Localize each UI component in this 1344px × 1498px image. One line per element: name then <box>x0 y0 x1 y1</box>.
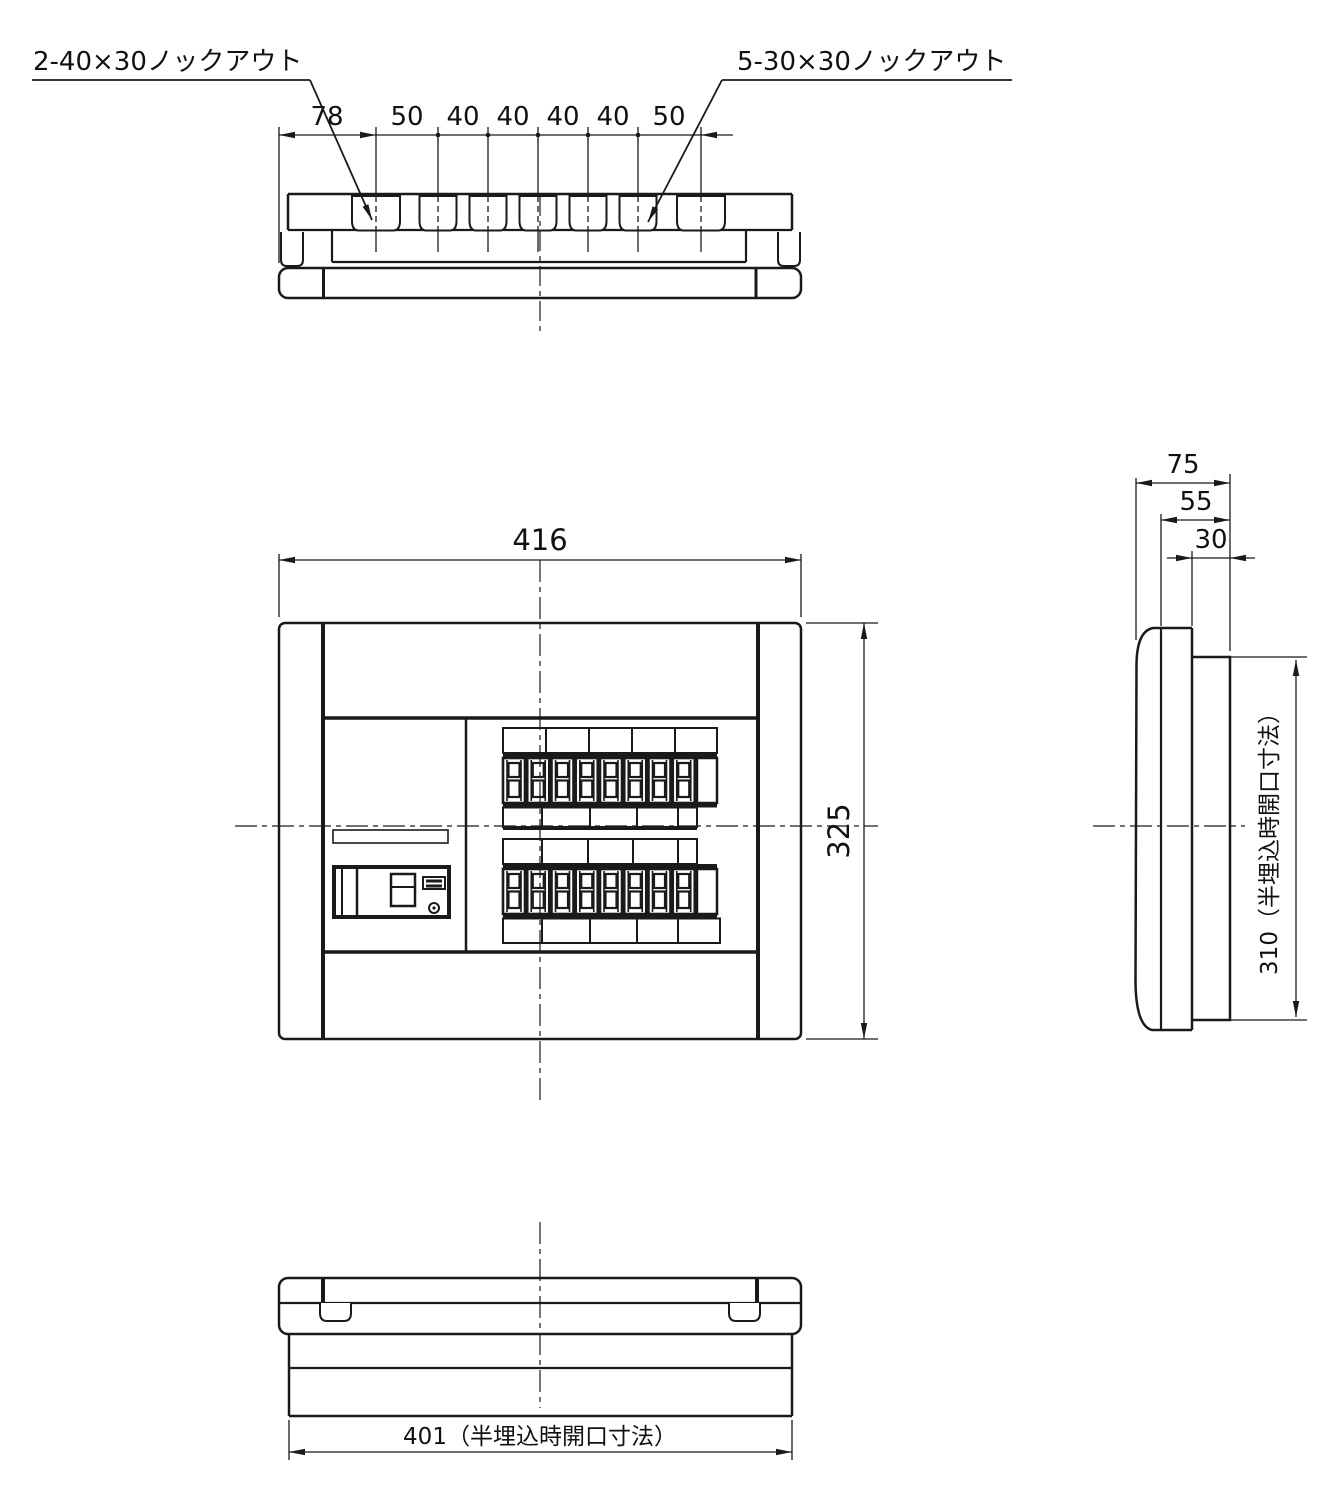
drawing-canvas: 78 50 40 40 40 40 50 2-40×30ノックアウト 5-30×… <box>0 0 1344 1498</box>
arrowhead <box>1214 480 1230 486</box>
leader-line <box>310 80 372 220</box>
main-breaker-section <box>333 830 449 917</box>
dim-40-3: 40 <box>546 102 579 132</box>
name-label-strip <box>333 830 448 843</box>
arrowhead <box>360 132 376 138</box>
side-view: 75 55 30 310（半埋込時開口寸法） <box>1093 450 1307 1030</box>
top-dimension-chain: 78 50 40 40 40 40 50 <box>279 102 733 138</box>
arrowhead <box>861 1023 867 1039</box>
dim-55-text: 55 <box>1179 487 1212 517</box>
arrowhead <box>279 557 295 563</box>
side-cover-profile <box>1136 628 1193 1030</box>
arrowhead <box>785 557 801 563</box>
callout-knockout-right-text: 5-30×30ノックアウト <box>737 47 1006 77</box>
dim-40-2: 40 <box>496 102 529 132</box>
arrowhead <box>1214 517 1230 523</box>
latch-hook-right <box>729 1303 760 1321</box>
side-body-profile <box>1192 657 1230 1020</box>
arrowhead <box>1293 660 1299 676</box>
empty-breaker-slot <box>697 869 717 914</box>
arrowhead <box>776 1449 792 1455</box>
arrowhead <box>701 132 717 138</box>
dim-325: 325 <box>806 623 878 1039</box>
arrowhead <box>1293 1001 1299 1017</box>
arrowhead <box>279 132 295 138</box>
dim-310-opening: 310（半埋込時開口寸法） <box>1192 657 1307 1020</box>
dim-416-text: 416 <box>512 523 567 557</box>
bottom-view: 401（半埋込時開口寸法） <box>279 1222 801 1460</box>
dim-325-text: 325 <box>822 803 856 858</box>
dim-30-text: 30 <box>1194 525 1227 555</box>
empty-breaker-slot <box>697 758 717 803</box>
dim-310-text: 310（半埋込時開口寸法） <box>1257 701 1283 975</box>
dim-401-opening: 401（半埋込時開口寸法） <box>289 1420 792 1460</box>
arrowhead <box>1161 517 1177 523</box>
front-view: 416 325 <box>235 523 878 1100</box>
dim-75-text: 75 <box>1166 450 1199 480</box>
dim-401-text: 401（半埋込時開口寸法） <box>403 1424 677 1450</box>
mounting-foot-right <box>778 232 800 266</box>
dim-55: 55 <box>1161 487 1230 626</box>
callout-knockout-left-text: 2-40×30ノックアウト <box>33 47 302 77</box>
arrowhead <box>1230 555 1246 561</box>
arrowhead <box>289 1449 305 1455</box>
dim-40-1: 40 <box>446 102 479 132</box>
dim-30: 30 <box>1167 525 1255 626</box>
arrowhead <box>861 623 867 639</box>
arrowhead <box>1136 480 1152 486</box>
top-view: 78 50 40 40 40 40 50 2-40×30ノックアウト 5-30×… <box>32 47 1012 335</box>
latch-hook-left <box>320 1303 351 1321</box>
dim-50-left: 50 <box>390 102 423 132</box>
dim-50-right: 50 <box>652 102 685 132</box>
mounting-foot-left <box>281 232 303 266</box>
arrowhead <box>1176 555 1192 561</box>
dim-40-4: 40 <box>596 102 629 132</box>
panelboard-dimension-drawing: 78 50 40 40 40 40 50 2-40×30ノックアウト 5-30×… <box>0 0 1344 1498</box>
